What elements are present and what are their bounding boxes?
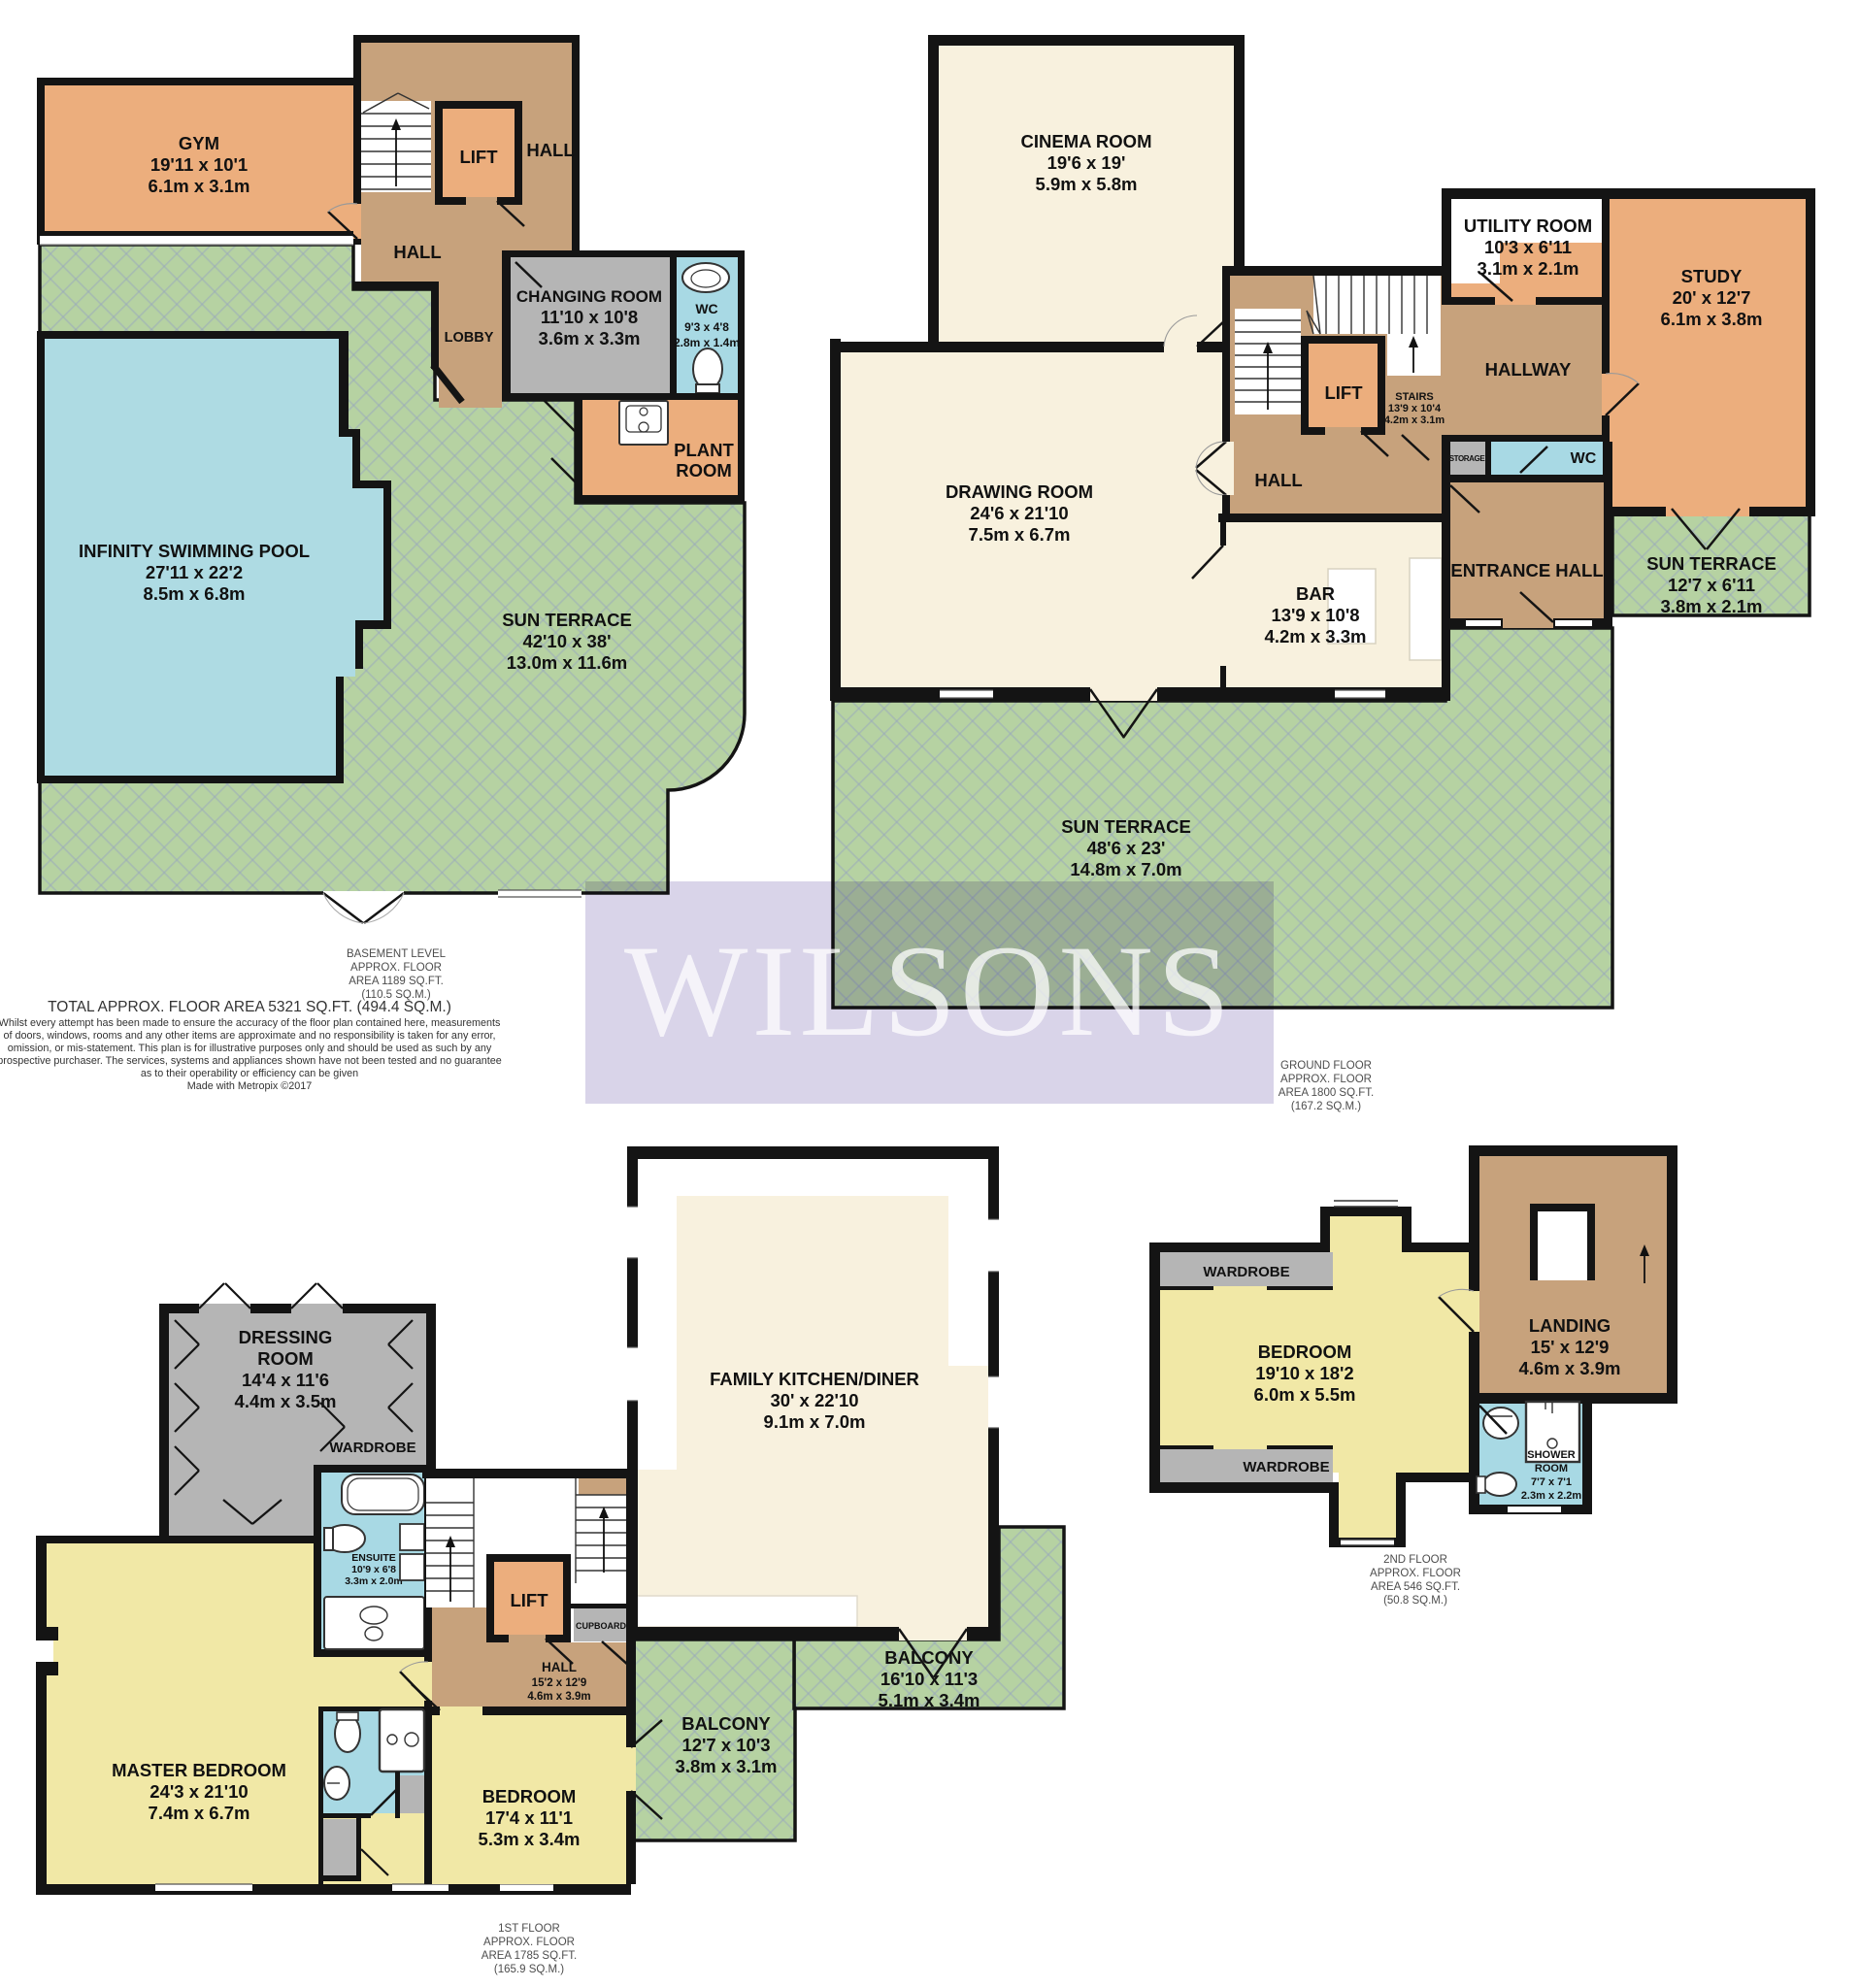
svg-text:30' x 22'10: 30' x 22'10 [770, 1390, 858, 1410]
svg-text:ROOM: ROOM [676, 460, 732, 480]
svg-text:5.1m x 3.4m: 5.1m x 3.4m [879, 1690, 980, 1710]
svg-text:AREA 1800 SQ.FT.: AREA 1800 SQ.FT. [1279, 1087, 1374, 1099]
svg-text:6.0m x 5.5m: 6.0m x 5.5m [1254, 1384, 1356, 1405]
svg-text:SUN TERRACE: SUN TERRACE [1646, 553, 1777, 574]
svg-text:AREA 546 SQ.FT.: AREA 546 SQ.FT. [1371, 1581, 1460, 1593]
svg-text:(50.8 SQ.M.): (50.8 SQ.M.) [1383, 1595, 1447, 1607]
svg-text:5.3m x 3.4m: 5.3m x 3.4m [479, 1829, 581, 1849]
svg-text:10'3 x 6'11: 10'3 x 6'11 [1484, 237, 1572, 257]
svg-text:20' x 12'7: 20' x 12'7 [1673, 287, 1751, 308]
svg-text:FAMILY KITCHEN/DINER: FAMILY KITCHEN/DINER [710, 1369, 919, 1389]
svg-text:6.1m x 3.8m: 6.1m x 3.8m [1661, 309, 1763, 329]
svg-text:BAR: BAR [1296, 583, 1335, 604]
svg-text:ENTRANCE HALL: ENTRANCE HALL [1450, 560, 1603, 580]
svg-text:STUDY: STUDY [1681, 266, 1743, 286]
svg-text:of doors, windows, rooms and a: of doors, windows, rooms and any other i… [3, 1030, 495, 1042]
svg-text:omission, or mis-statement. Th: omission, or mis-statement. This plan is… [8, 1043, 492, 1054]
svg-text:HALL: HALL [1254, 470, 1302, 490]
svg-text:INFINITY SWIMMING POOL: INFINITY SWIMMING POOL [79, 541, 310, 561]
svg-text:13'9 x 10'4: 13'9 x 10'4 [1388, 403, 1442, 414]
svg-text:4.4m x 3.5m: 4.4m x 3.5m [235, 1391, 337, 1411]
svg-text:7.4m x 6.7m: 7.4m x 6.7m [149, 1803, 250, 1823]
svg-text:CUPBOARD: CUPBOARD [576, 1621, 627, 1631]
svg-text:CHANGING ROOM: CHANGING ROOM [516, 287, 662, 306]
svg-text:3.1m x 2.1m: 3.1m x 2.1m [1478, 258, 1579, 279]
svg-text:ENSUITE: ENSUITE [351, 1552, 396, 1564]
svg-text:13'9 x 10'8: 13'9 x 10'8 [1271, 605, 1359, 625]
svg-text:prospective purchaser. The ser: prospective purchaser. The services, sys… [0, 1055, 502, 1067]
svg-text:14'4 x 11'6: 14'4 x 11'6 [242, 1370, 329, 1390]
svg-text:SUN TERRACE: SUN TERRACE [502, 610, 632, 630]
svg-text:10'9 x 6'8: 10'9 x 6'8 [351, 1564, 396, 1575]
svg-text:5.9m x 5.8m: 5.9m x 5.8m [1036, 174, 1138, 194]
svg-text:ROOM: ROOM [1535, 1463, 1568, 1474]
svg-text:13.0m x 11.6m: 13.0m x 11.6m [507, 652, 627, 673]
svg-text:CINEMA ROOM: CINEMA ROOM [1021, 131, 1152, 151]
svg-text:TOTAL APPROX. FLOOR AREA 5321: TOTAL APPROX. FLOOR AREA 5321 SQ.FT. (49… [48, 999, 451, 1015]
svg-text:ROOM: ROOM [257, 1348, 314, 1369]
svg-text:HALL: HALL [526, 140, 574, 160]
svg-text:APPROX. FLOOR: APPROX. FLOOR [483, 1937, 575, 1948]
svg-text:2.8m x 1.4m: 2.8m x 1.4m [674, 336, 740, 349]
svg-text:GYM: GYM [179, 133, 219, 153]
svg-text:19'11 x 10'1: 19'11 x 10'1 [150, 154, 248, 175]
svg-text:2.3m x 2.2m: 2.3m x 2.2m [1521, 1490, 1582, 1502]
svg-text:BEDROOM: BEDROOM [482, 1786, 577, 1806]
svg-text:4.2m x 3.3m: 4.2m x 3.3m [1265, 626, 1367, 646]
svg-text:4.6m x 3.9m: 4.6m x 3.9m [1519, 1358, 1621, 1378]
svg-text:19'10 x 18'2: 19'10 x 18'2 [1255, 1363, 1353, 1383]
svg-text:7'7 x 7'1: 7'7 x 7'1 [1531, 1476, 1572, 1488]
svg-text:WARDROBE: WARDROBE [1203, 1264, 1289, 1280]
svg-text:9.1m x 7.0m: 9.1m x 7.0m [764, 1411, 866, 1432]
svg-text:SUN TERRACE: SUN TERRACE [1061, 816, 1191, 837]
svg-text:11'10 x 10'8: 11'10 x 10'8 [541, 307, 638, 327]
svg-text:17'4 x 11'1: 17'4 x 11'1 [485, 1807, 573, 1828]
svg-text:3.8m x 3.1m: 3.8m x 3.1m [676, 1756, 778, 1776]
svg-text:15'2 x 12'9: 15'2 x 12'9 [532, 1677, 587, 1689]
svg-text:7.5m x 6.7m: 7.5m x 6.7m [969, 524, 1071, 545]
svg-text:3.3m x 2.0m: 3.3m x 2.0m [345, 1575, 403, 1587]
svg-text:as to their operability or eff: as to their operability or efficiency ca… [141, 1068, 358, 1079]
svg-text:STORAGE: STORAGE [1449, 454, 1486, 463]
svg-text:24'3 x 21'10: 24'3 x 21'10 [149, 1781, 248, 1802]
svg-text:SHOWER: SHOWER [1527, 1449, 1576, 1461]
svg-text:27'11 x 22'2: 27'11 x 22'2 [146, 562, 243, 582]
svg-text:WARDROBE: WARDROBE [1243, 1459, 1329, 1475]
svg-text:Made with Metropix ©2017: Made with Metropix ©2017 [187, 1080, 313, 1092]
svg-text:LIFT: LIFT [1324, 382, 1363, 403]
svg-text:DRESSING: DRESSING [239, 1327, 333, 1347]
svg-text:Whilst every attempt has been: Whilst every attempt has been made to en… [0, 1017, 501, 1029]
svg-text:48'6 x 23': 48'6 x 23' [1087, 838, 1166, 858]
svg-text:WILSONS: WILSONS [624, 919, 1234, 1064]
svg-text:6.1m x 3.1m: 6.1m x 3.1m [149, 176, 250, 196]
svg-text:WARDROBE: WARDROBE [329, 1440, 415, 1456]
svg-text:12'7 x 10'3: 12'7 x 10'3 [681, 1735, 770, 1755]
svg-text:24'6 x 21'10: 24'6 x 21'10 [970, 503, 1068, 523]
svg-text:BALCONY: BALCONY [884, 1647, 974, 1668]
svg-text:BEDROOM: BEDROOM [1258, 1342, 1352, 1362]
svg-text:14.8m x 7.0m: 14.8m x 7.0m [1070, 859, 1181, 879]
svg-text:STAIRS: STAIRS [1395, 391, 1434, 403]
svg-text:WC: WC [695, 301, 717, 316]
svg-text:AREA 1785 SQ.FT.: AREA 1785 SQ.FT. [482, 1950, 577, 1962]
svg-text:15' x 12'9: 15' x 12'9 [1531, 1337, 1610, 1357]
svg-text:AREA 1189 SQ.FT.: AREA 1189 SQ.FT. [349, 976, 444, 987]
svg-text:8.5m x 6.8m: 8.5m x 6.8m [144, 583, 246, 604]
svg-text:APPROX. FLOOR: APPROX. FLOOR [350, 962, 442, 974]
svg-text:MASTER BEDROOM: MASTER BEDROOM [112, 1760, 286, 1780]
svg-text:(165.9 SQ.M.): (165.9 SQ.M.) [494, 1964, 564, 1975]
svg-text:LIFT: LIFT [459, 147, 498, 167]
svg-text:4.6m x 3.9m: 4.6m x 3.9m [527, 1691, 590, 1703]
svg-text:GROUND FLOOR: GROUND FLOOR [1280, 1060, 1372, 1072]
svg-text:1ST FLOOR: 1ST FLOOR [498, 1923, 560, 1935]
svg-text:9'3 x 4'8: 9'3 x 4'8 [684, 320, 729, 334]
svg-text:HALLWAY: HALLWAY [1485, 359, 1572, 380]
svg-text:APPROX. FLOOR: APPROX. FLOOR [1370, 1568, 1461, 1579]
svg-text:APPROX. FLOOR: APPROX. FLOOR [1280, 1074, 1372, 1085]
svg-text:LIFT: LIFT [510, 1590, 548, 1610]
svg-text:DRAWING ROOM: DRAWING ROOM [946, 481, 1093, 502]
svg-text:42'10 x 38': 42'10 x 38' [522, 631, 611, 651]
svg-text:PLANT: PLANT [674, 440, 734, 460]
svg-text:WC: WC [1571, 450, 1597, 467]
svg-text:LOBBY: LOBBY [445, 330, 494, 346]
svg-text:(167.2 SQ.M.): (167.2 SQ.M.) [1291, 1101, 1361, 1112]
svg-text:UTILITY ROOM: UTILITY ROOM [1464, 215, 1592, 236]
svg-text:LANDING: LANDING [1529, 1315, 1611, 1336]
svg-text:HALL: HALL [393, 242, 441, 262]
svg-text:3.6m x 3.3m: 3.6m x 3.3m [539, 328, 641, 348]
svg-text:12'7 x 6'11: 12'7 x 6'11 [1668, 575, 1755, 595]
svg-text:3.8m x 2.1m: 3.8m x 2.1m [1661, 596, 1763, 616]
svg-text:4.2m x 3.1m: 4.2m x 3.1m [1384, 414, 1445, 426]
svg-text:BASEMENT LEVEL: BASEMENT LEVEL [347, 948, 447, 960]
svg-text:19'6 x 19': 19'6 x 19' [1047, 152, 1126, 173]
svg-text:BALCONY: BALCONY [681, 1713, 771, 1734]
svg-text:2ND FLOOR: 2ND FLOOR [1383, 1554, 1447, 1566]
